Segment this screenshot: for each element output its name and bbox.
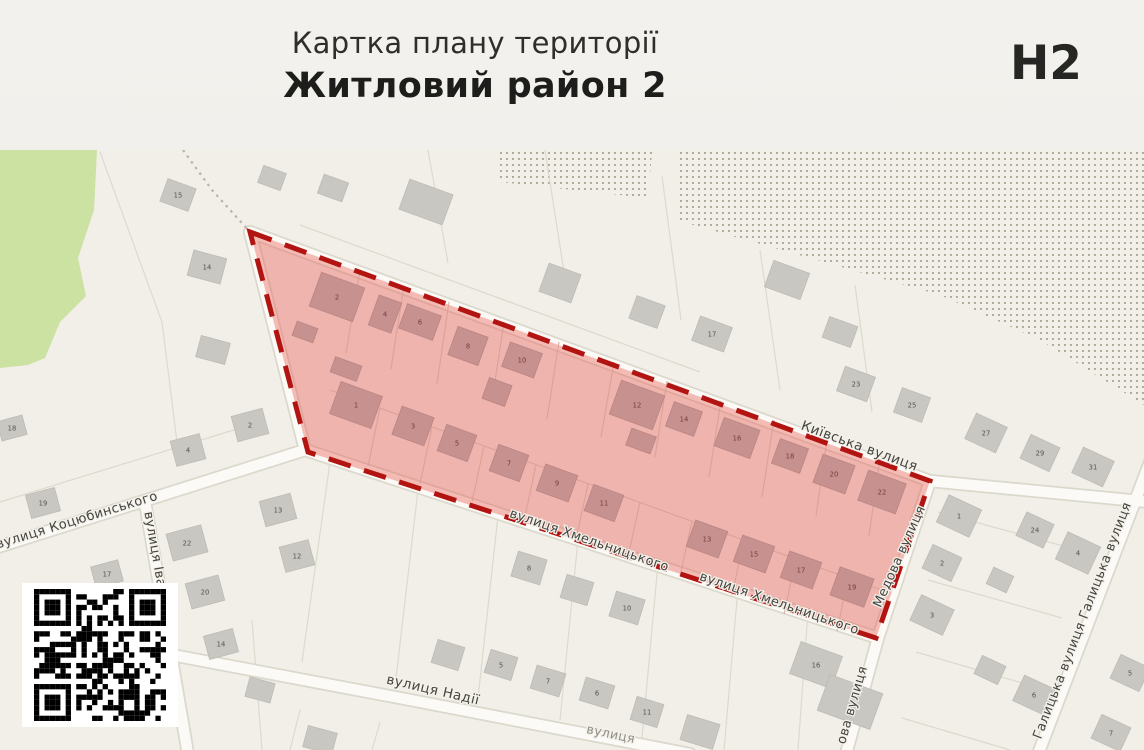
building-number: 3	[411, 422, 415, 430]
building-number: 16	[812, 661, 821, 669]
building-number: 13	[274, 506, 283, 514]
building-number: 11	[643, 708, 652, 716]
title-block: Картка плану території Житловий район 2	[0, 0, 950, 106]
building-number: 10	[518, 356, 527, 364]
building-number: 3	[930, 611, 934, 619]
building-number: 6	[1032, 691, 1036, 699]
building-number: 19	[848, 583, 857, 591]
map-canvas[interactable]: 2468101214161820221357911131517191514172…	[0, 150, 1144, 750]
building-number: 22	[878, 488, 887, 496]
qr-code	[22, 583, 178, 727]
building-number: 14	[680, 415, 689, 423]
district-code: Н2	[1010, 36, 1082, 91]
building-number: 4	[383, 310, 387, 318]
building-number: 11	[600, 499, 609, 507]
building-number: 12	[633, 401, 642, 409]
building-number: 25	[908, 401, 917, 409]
building-number: 27	[982, 429, 991, 437]
building-number: 7	[546, 677, 550, 685]
building-number: 5	[499, 661, 503, 669]
building-number: 12	[293, 552, 302, 560]
building-number: 5	[1128, 669, 1132, 677]
territory-plan-card: Картка плану території Житловий район 2 …	[0, 0, 1144, 750]
building-number: 23	[852, 380, 861, 388]
building-number: 13	[703, 535, 712, 543]
building-number: 15	[174, 191, 183, 199]
building-number: 5	[455, 439, 459, 447]
map-title: Житловий район 2	[0, 66, 950, 106]
building-number: 4	[1076, 549, 1080, 557]
building-number: 16	[733, 434, 742, 442]
building-number: 17	[797, 566, 806, 574]
building-number: 2	[335, 293, 339, 301]
building-number: 7	[1109, 729, 1113, 737]
building-number: 8	[527, 564, 531, 572]
building-number: 31	[1089, 463, 1098, 471]
building-number: 14	[217, 640, 226, 648]
building-number: 17	[708, 330, 717, 338]
building-number: 7	[507, 459, 511, 467]
building-number: 1	[354, 401, 358, 409]
building-number: 8	[466, 342, 470, 350]
building-number: 2	[940, 559, 944, 567]
building-number: 10	[623, 604, 632, 612]
building-number: 4	[186, 446, 190, 454]
building-number: 24	[1031, 526, 1040, 534]
building-number: 15	[750, 550, 759, 558]
building-number: 9	[555, 479, 559, 487]
building-number: 20	[201, 588, 210, 596]
card-header: Картка плану території Житловий район 2 …	[0, 0, 1144, 150]
building-number: 6	[595, 689, 599, 697]
building-number: 18	[8, 424, 17, 432]
building-number: 22	[183, 539, 192, 547]
building-number: 2	[248, 421, 252, 429]
building-number: 19	[39, 499, 48, 507]
map-subtitle: Картка плану території	[0, 26, 950, 60]
building-number: 20	[830, 470, 839, 478]
building-number: 6	[418, 318, 422, 326]
building-number: 29	[1036, 449, 1045, 457]
building-number: 17	[103, 570, 112, 578]
building-number: 14	[203, 263, 212, 271]
building-number: 1	[957, 512, 961, 520]
building-number: 18	[786, 452, 795, 460]
